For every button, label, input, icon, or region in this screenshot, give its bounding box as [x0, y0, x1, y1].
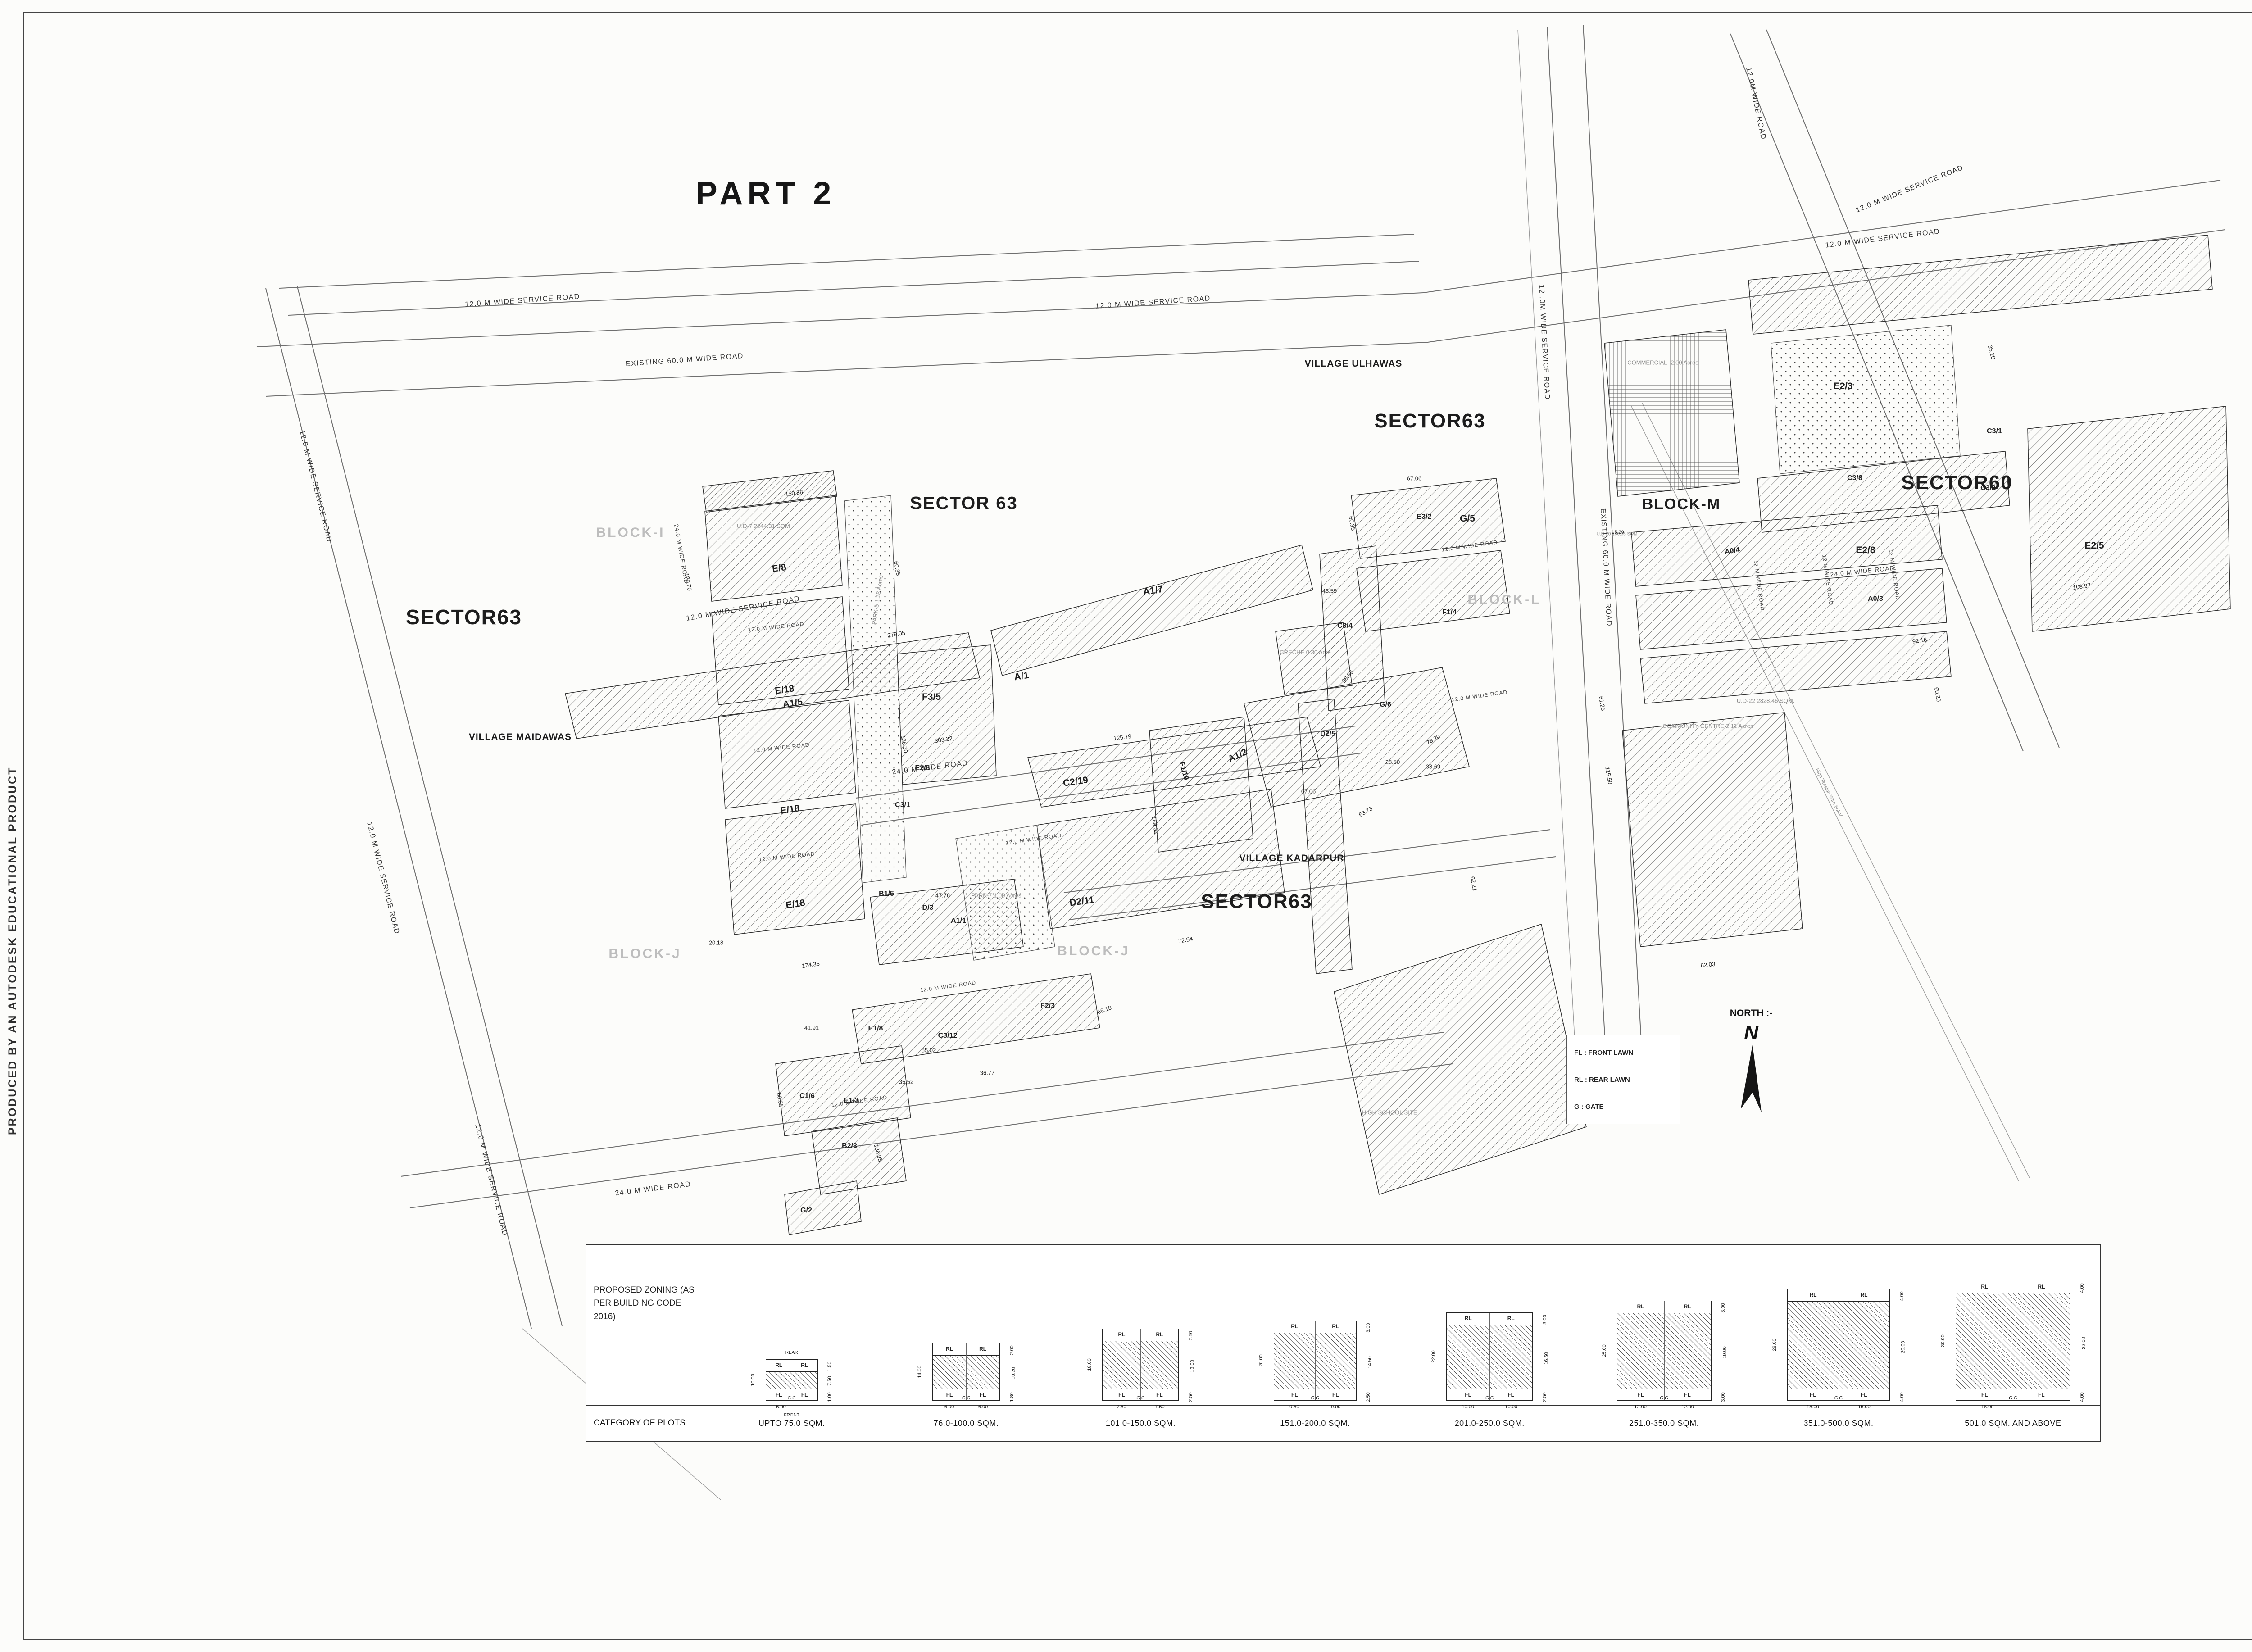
map-label: C1/6 — [799, 1092, 815, 1100]
rl-abbr: RL — [766, 1360, 792, 1371]
map-label: U.D-7 2244.31 SQM — [737, 523, 790, 530]
proposed-zoning-strip: PROPOSED ZONING (AS PER BUILDING CODE 20… — [586, 1244, 2101, 1442]
zoning-diagram-cell: 14.00 2.00 10.20 1.80 RL RL FL — [879, 1245, 1053, 1405]
map-label: C3/2 — [1980, 484, 1996, 492]
plot-front-dim: 2.50 — [1188, 1392, 1194, 1402]
rear-lawn-band: RL RL — [933, 1343, 999, 1356]
map-label: E/18 — [785, 898, 806, 911]
plot-width-dims: 7.50 7.50 — [1102, 1404, 1179, 1410]
rl-abbr: RL — [966, 1343, 999, 1355]
map-label: 60.20 — [1933, 687, 1942, 703]
map-label: 169.32 — [1151, 816, 1160, 834]
front-lawn-band: FL FL G G — [1788, 1389, 1889, 1400]
plot-buildable-dim: 22.00 — [2081, 1337, 2086, 1350]
map-label: 120.70 — [683, 572, 693, 591]
legend-gate: G : GATE — [1574, 1103, 1672, 1111]
plot-buildable-dim: 16.50 — [1544, 1352, 1549, 1365]
width-dim: 12.00 — [1681, 1404, 1694, 1410]
map-legend: FL : FRONT LAWN RL : REAR LAWN G : GATE — [1566, 1035, 1680, 1124]
proposed-zoning-label: PROPOSED ZONING (AS PER BUILDING CODE 20… — [586, 1245, 704, 1405]
rl-abbr: RL — [1315, 1321, 1356, 1333]
plot-rear-dim: 4.00 — [1899, 1291, 1905, 1301]
map-label: EXISTING 60.0 M WIDE ROAD — [1598, 508, 1613, 626]
width-dim: 10.00 — [1462, 1404, 1474, 1410]
category-label: 251.0-350.0 SQM. — [1577, 1405, 1751, 1441]
category-label: 501.0 SQM. AND ABOVE — [1926, 1405, 2100, 1441]
rl-abbr: RL — [1956, 1281, 2013, 1293]
map-label: 15.29 — [1612, 530, 1624, 535]
rl-abbr: RL — [1788, 1289, 1839, 1301]
map-label: 150.88 — [785, 489, 803, 498]
map-label: 88.85 — [1340, 669, 1355, 685]
plot-box: RL RL FL FL G G — [1102, 1329, 1179, 1401]
rl-abbr: RL — [1839, 1289, 1889, 1301]
map-label: A1/5 — [782, 697, 804, 711]
buildable-zone-hatch — [1617, 1313, 1711, 1389]
plot-front-dim: 1.80 — [1009, 1392, 1015, 1402]
map-label: 36.77 — [980, 1070, 995, 1076]
map-label: PARK-7 1.00 Acres — [971, 892, 1021, 899]
plot-front-dim: 1.00 — [827, 1392, 832, 1402]
map-label: SECTOR63 — [1201, 890, 1312, 913]
map-label: A1/1 — [951, 917, 966, 925]
plot-rear-dim: 3.00 — [1542, 1315, 1548, 1324]
map-label: High Tension Wire 66KV — [1814, 767, 1843, 818]
rl-abbr: RL — [1274, 1321, 1315, 1333]
map-label: CRECHE 0.30 Acre — [1280, 649, 1330, 656]
map-label: C3/1 — [895, 801, 910, 809]
width-dim: 5.00 — [776, 1404, 785, 1410]
plot-diagram: 10.00 1.50 7.50 1.00 REAR RL RL — [766, 1359, 818, 1401]
plot-diagram: 14.00 2.00 10.20 1.80 RL RL FL — [932, 1343, 1000, 1401]
zoning-diagram-cell: 10.00 1.50 7.50 1.00 REAR RL RL — [704, 1245, 879, 1405]
map-label: 115.50 — [1604, 767, 1614, 785]
rear-lawn-band: RL RL — [1956, 1281, 2070, 1293]
map-label: 12.0 M WIDE SERVICE ROAD — [1825, 227, 1940, 250]
map-label: BLOCK-J — [1057, 944, 1130, 959]
width-dim: 12.00 — [1634, 1404, 1647, 1410]
plot-box: RL RL FL FL G G — [1446, 1312, 1533, 1401]
rl-abbr: RL — [792, 1360, 817, 1371]
legend-front-lawn: FL : FRONT LAWN — [1574, 1049, 1672, 1057]
map-label: 28.50 — [1385, 759, 1400, 766]
map-label: 12.0 M WIDE ROAD — [753, 741, 810, 753]
map-label: BLOCK-L — [1468, 592, 1541, 608]
category-of-plots-label: CATEGORY OF PLOTS — [586, 1405, 704, 1441]
map-label: 92.18 — [1912, 636, 1927, 644]
map-label: COMMERCIAL- 2.00 Acres — [1627, 359, 1698, 366]
fl-abbr: FL — [1447, 1389, 1489, 1400]
width-dim: 10.00 — [1505, 1404, 1517, 1410]
legend-rear-lawn: RL : REAR LAWN — [1574, 1076, 1672, 1084]
map-label: E/18 — [774, 683, 795, 697]
map-label: 125.79 — [1113, 733, 1131, 742]
gate-abbr: G G — [2009, 1396, 2017, 1401]
map-label: 38.69 — [1426, 763, 1441, 770]
map-label: 174.35 — [801, 960, 820, 969]
fl-abbr: FL — [1617, 1389, 1664, 1400]
plot-box: RL RL FL FL G G — [1617, 1301, 1712, 1401]
plot-front-dim: 3.00 — [1721, 1392, 1726, 1402]
plot-rear-dim: 2.00 — [1009, 1345, 1015, 1355]
map-label: 24.0 M WIDE ROAD — [892, 759, 969, 777]
plot-box: RL RL FL FL G G — [766, 1359, 818, 1401]
plot-depth-dim: 18.00 — [1087, 1358, 1093, 1371]
map-label: BLOCK-J — [608, 946, 681, 962]
plot-depth-dim: 30.00 — [1941, 1334, 1946, 1347]
map-label: EXISTING 60.0 M WIDE ROAD — [625, 352, 744, 368]
map-label: SECTOR 63 — [910, 494, 1018, 514]
fl-abbr: FL — [1315, 1389, 1356, 1400]
plot-buildable-dim: 10.20 — [1011, 1367, 1016, 1380]
plot-buildable-dim: 14.50 — [1367, 1356, 1373, 1369]
map-label: 12.0 M WIDE SERVICE ROAD — [1855, 164, 1965, 215]
map-label: 12 M WIDE ROAD — [1753, 560, 1766, 611]
map-label: 67.06 — [1301, 788, 1316, 795]
map-label: 60.35 — [776, 1092, 785, 1108]
map-label: 12.0 M WIDE ROAD — [758, 850, 815, 862]
map-label: F2/3 — [1040, 1002, 1055, 1010]
map-label: 303.22 — [934, 735, 953, 744]
map-label: E3/2 — [1417, 513, 1432, 521]
fl-abbr: FL — [1664, 1389, 1711, 1400]
map-label: U.D-22 2828.46 SQM. — [1737, 698, 1795, 704]
rl-abbr: RL — [933, 1343, 966, 1355]
plot-buildable-dim: 13.00 — [1190, 1360, 1195, 1372]
map-label: 62.03 — [1700, 961, 1716, 969]
rl-abbr: RL — [1489, 1313, 1532, 1325]
buildable-zone-hatch — [1103, 1341, 1178, 1389]
map-label: D2/11 — [1069, 894, 1095, 908]
gate-abbr: G G — [1136, 1396, 1144, 1401]
map-label: PART 2 — [696, 175, 836, 212]
map-label: C3/4 — [1337, 622, 1353, 630]
rl-abbr: RL — [1447, 1313, 1489, 1325]
plot-diagram: 28.00 4.00 20.00 4.00 RL RL FL — [1787, 1289, 1890, 1401]
plot-rear-dim: 2.50 — [1188, 1331, 1194, 1340]
plot-rear-dim: 3.00 — [1721, 1303, 1726, 1312]
map-label: D2/5 — [1320, 730, 1335, 738]
map-label: SECTOR60 — [1901, 472, 2013, 494]
north-indicator: NORTH :- N — [1724, 1008, 1778, 1116]
gate-abbr: G G — [1485, 1396, 1494, 1401]
front-lawn-band: FL FL G G — [766, 1389, 817, 1400]
gate-abbr: G G — [788, 1396, 796, 1401]
map-label: 12.0 M WIDE ROAD — [1451, 689, 1508, 703]
buildable-zone-hatch — [933, 1356, 999, 1389]
fl-abbr: FL — [1788, 1389, 1839, 1400]
rl-abbr: RL — [1617, 1301, 1664, 1313]
map-label: PARK-5 1.18 Acres — [871, 575, 884, 625]
plot-box: RL RL FL FL G G — [1956, 1281, 2070, 1401]
plot-rear-dim: 1.50 — [827, 1362, 832, 1371]
plot-depth-dim: 25.00 — [1602, 1344, 1607, 1357]
rl-abbr: RL — [1664, 1301, 1711, 1313]
map-label: 35.20 — [1987, 344, 1997, 360]
plot-depth-dim: 20.00 — [1258, 1354, 1264, 1367]
plot-width-dims: 18.00 — [1956, 1404, 2070, 1410]
gate-abbr: G G — [962, 1396, 970, 1401]
map-label: E2/3 — [1833, 381, 1852, 392]
map-label: 12.0 M WIDE ROAD — [920, 979, 976, 993]
plot-buildable-dim: 19.00 — [1722, 1347, 1727, 1359]
map-label: 136.95 — [873, 1144, 884, 1162]
width-dim: 7.50 — [1117, 1404, 1126, 1410]
width-dim: 6.00 — [978, 1404, 988, 1410]
rl-abbr: RL — [1140, 1329, 1178, 1341]
map-label: A/1 — [1013, 670, 1030, 683]
map-label: E/18 — [780, 803, 800, 817]
map-label: 12 M WIDE ROAD — [1821, 554, 1834, 606]
plot-depth-dim: 28.00 — [1772, 1339, 1777, 1351]
map-label: 60.35 — [893, 561, 902, 576]
map-label: 279.05 — [887, 629, 906, 639]
plot-diagram: 22.00 3.00 16.50 2.50 RL RL FL — [1446, 1312, 1533, 1401]
rear-lawn-band: RL RL — [1617, 1301, 1711, 1313]
map-label: 72.54 — [1178, 935, 1194, 944]
map-label: F1/19 — [1177, 761, 1190, 781]
map-label: 43.59 — [1322, 588, 1337, 595]
front-lawn-band: FL FL G G — [1956, 1389, 2070, 1400]
plot-box: RL RL FL FL G G — [932, 1343, 1000, 1401]
map-label: 47.78 — [935, 892, 950, 899]
buildable-zone-hatch — [766, 1372, 817, 1389]
category-label: 76.0-100.0 SQM. — [879, 1405, 1053, 1441]
map-label: 61.25 — [1598, 696, 1607, 712]
map-label: 12.0 M WIDE ROAD — [831, 1094, 888, 1108]
plot-rear-dim: 3.00 — [1366, 1323, 1371, 1332]
map-label: 138.30 — [899, 735, 909, 753]
map-label: VILLAGE ULHAWAS — [1305, 359, 1403, 369]
fl-abbr: FL — [1489, 1389, 1532, 1400]
map-label: VILLAGE MAIDAWAS — [469, 732, 572, 743]
map-label: 66.18 — [1096, 1004, 1112, 1015]
width-dim: 6.00 — [944, 1404, 954, 1410]
edge-text-left: PRODUCED BY AN AUTODESK EDUCATIONAL PROD… — [6, 767, 19, 1135]
drawing-sheet: PART 2 SECTOR63 SECTOR 63 SECTOR63 SECTO… — [0, 0, 2252, 1652]
map-label: 12 M WIDE ROAD — [1888, 549, 1901, 600]
fl-abbr: FL — [933, 1389, 966, 1400]
front-lawn-band: FL FL G G — [1447, 1389, 1532, 1400]
front-lawn-band: FL FL G G — [1274, 1389, 1356, 1400]
north-n: N — [1724, 1025, 1778, 1041]
map-label: 12.0 M WIDE ROAD — [748, 621, 804, 633]
map-label: E2/8 — [1856, 545, 1875, 556]
zoning-diagram-cell: 28.00 4.00 20.00 4.00 RL RL FL — [1751, 1245, 1925, 1405]
map-label: F1/4 — [1442, 608, 1457, 617]
width-dim: 9.50 — [1289, 1404, 1299, 1410]
category-label: 351.0-500.0 SQM. — [1751, 1405, 1925, 1441]
plot-width-dims: 5.00 — [766, 1404, 818, 1410]
gate-abbr: G G — [1660, 1396, 1668, 1401]
plot-depth-dim: 14.00 — [917, 1366, 922, 1378]
plot-diagram: 20.00 3.00 14.50 2.50 RL RL FL — [1274, 1321, 1357, 1401]
map-label: C2/19 — [1062, 775, 1089, 789]
plot-box: RL RL FL FL G G — [1274, 1321, 1357, 1401]
fl-abbr: FL — [2013, 1389, 2070, 1400]
front-lawn-band: FL FL G G — [933, 1389, 999, 1400]
plot-width-dims: 12.00 12.00 — [1617, 1404, 1712, 1410]
plot-front-dim: 2.50 — [1366, 1392, 1371, 1402]
buildable-zone-hatch — [1788, 1302, 1889, 1389]
plot-rear-label: REAR — [785, 1350, 798, 1355]
rear-lawn-band: RL RL — [1103, 1329, 1178, 1341]
plot-front-dim: 4.00 — [2079, 1392, 2085, 1402]
rear-lawn-band: RL RL — [1788, 1289, 1889, 1302]
fl-abbr: FL — [1274, 1389, 1315, 1400]
width-dim: 15.00 — [1858, 1404, 1871, 1410]
map-label: E1/8 — [868, 1025, 883, 1033]
plot-depth-dim: 22.00 — [1431, 1350, 1436, 1363]
map-label: 20.18 — [709, 939, 724, 946]
map-label: SECTOR63 — [406, 605, 522, 629]
map-label: 63.73 — [1358, 805, 1374, 818]
plot-diagram: 25.00 3.00 19.00 3.00 RL RL FL — [1617, 1301, 1712, 1401]
rear-lawn-band: RL RL — [766, 1360, 817, 1372]
map-label: B2/3 — [842, 1142, 857, 1150]
map-label: E2/5 — [2084, 540, 2104, 551]
gate-abbr: G G — [1311, 1396, 1319, 1401]
map-label: A0/3 — [1868, 595, 1883, 603]
map-label: 12.0 M WIDE SERVICE ROAD — [473, 1123, 509, 1237]
rear-lawn-band: RL RL — [1274, 1321, 1356, 1333]
map-label: VILLAGE KADARPUR — [1239, 853, 1344, 864]
map-label: BLOCK-M — [1642, 496, 1721, 513]
category-label: 201.0-250.0 SQM. — [1403, 1405, 1577, 1441]
map-label: SECTOR63 — [1374, 410, 1486, 432]
map-label: 78.20 — [1425, 733, 1441, 746]
map-label: 12 .0M WIDE SERVICE ROAD — [1537, 285, 1551, 400]
map-label: G/5 — [1460, 513, 1475, 524]
map-label: C3/8 — [1847, 474, 1862, 482]
zoning-diagram-cell: 30.00 4.00 22.00 4.00 RL RL FL — [1926, 1245, 2100, 1405]
plot-width-dims: 10.00 10.00 — [1446, 1404, 1533, 1410]
plot-depth-dim: 10.00 — [750, 1374, 756, 1386]
map-label: 62.21 — [1469, 876, 1478, 892]
map-label: 55.02 — [922, 1047, 936, 1054]
map-label: B1/5 — [879, 890, 894, 898]
fl-abbr: FL — [966, 1389, 999, 1400]
plot-width-dims: 6.00 6.00 — [932, 1404, 1000, 1410]
map-label: E/8 — [772, 562, 787, 575]
map-label: BLOCK-I — [596, 525, 665, 540]
width-dim: 9.00 — [1331, 1404, 1340, 1410]
plot-box: RL RL FL FL G G — [1787, 1289, 1890, 1401]
map-label: HIGH SCHOOL SITE — [1362, 1109, 1417, 1116]
zoning-diagram-cell: 25.00 3.00 19.00 3.00 RL RL FL — [1577, 1245, 1751, 1405]
map-label: 12.0 M WIDE ROAD — [1005, 832, 1062, 846]
map-label: F3/5 — [922, 692, 941, 703]
plot-front-label: FRONT — [784, 1413, 799, 1418]
plot-diagram: 18.00 2.50 13.00 2.50 RL RL FL — [1102, 1329, 1179, 1401]
width-dim: 15.00 — [1807, 1404, 1819, 1410]
map-label: 12.0 M WIDE SERVICE ROAD — [297, 430, 333, 544]
map-label: 24.0 M WIDE ROAD — [1830, 564, 1895, 578]
map-label: C3/12 — [938, 1032, 958, 1040]
rl-abbr: RL — [2013, 1281, 2070, 1293]
category-label: 101.0-150.0 SQM. — [1053, 1405, 1228, 1441]
plot-diagram: 30.00 4.00 22.00 4.00 RL RL FL — [1956, 1281, 2070, 1401]
map-label: 12.0 M WIDE SERVICE ROAD — [365, 821, 400, 935]
map-label: 12.0 M WIDE ROAD — [1441, 539, 1498, 553]
map-label: D/3 — [922, 904, 934, 912]
map-label: COMMUNITY CENTRE 2.11 Acres — [1662, 723, 1753, 730]
plot-width-dims: 9.50 9.00 — [1274, 1404, 1357, 1410]
plot-buildable-dim: 20.00 — [1901, 1341, 1906, 1353]
map-label: 41.91 — [804, 1025, 819, 1031]
map-label: 24.0 M WIDE ROAD — [615, 1180, 692, 1198]
front-lawn-band: FL FL G G — [1103, 1389, 1178, 1400]
front-lawn-band: FL FL G G — [1617, 1389, 1711, 1400]
plot-front-dim: 2.50 — [1542, 1392, 1548, 1402]
map-label: A0/4 — [1724, 546, 1740, 557]
category-label: UPTO 75.0 SQM. — [704, 1405, 879, 1441]
map-label: 67.06 — [1407, 475, 1422, 482]
map-label: 35.52 — [899, 1079, 914, 1085]
width-dim: 18.00 — [1981, 1404, 1994, 1410]
plot-buildable-dim: 7.50 — [827, 1376, 832, 1385]
buildable-zone-hatch — [1447, 1325, 1532, 1389]
zoning-diagram-cell: 20.00 3.00 14.50 2.50 RL RL FL — [1228, 1245, 1402, 1405]
rear-lawn-band: RL RL — [1447, 1313, 1532, 1325]
map-label: G/2 — [800, 1207, 812, 1215]
map-label: 12 0M WIDE ROAD — [1744, 67, 1767, 141]
fl-abbr: FL — [1839, 1389, 1889, 1400]
zoning-diagram-cell: 22.00 3.00 16.50 2.50 RL RL FL — [1403, 1245, 1577, 1405]
map-label: C3/1 — [1987, 427, 2002, 436]
map-label: A1/2 — [1226, 747, 1249, 765]
map-label: 12.0 M WIDE SERVICE ROAD — [686, 595, 800, 623]
plot-front-dim: 4.00 — [1899, 1392, 1905, 1402]
north-arrow-icon — [1735, 1041, 1767, 1113]
plot-width-dims: 15.00 15.00 — [1787, 1404, 1890, 1410]
category-label: 151.0-200.0 SQM. — [1228, 1405, 1402, 1441]
width-dim: 7.50 — [1155, 1404, 1164, 1410]
buildable-zone-hatch — [1956, 1293, 2070, 1389]
map-label: 12.0 M WIDE SERVICE ROAD — [465, 293, 581, 309]
map-label: 60.35 — [1348, 516, 1357, 531]
fl-abbr: FL — [1140, 1389, 1178, 1400]
north-label: NORTH :- — [1724, 1008, 1778, 1019]
map-label: G/6 — [1380, 701, 1391, 709]
map-label: A1/7 — [1142, 584, 1164, 598]
fl-abbr: FL — [1956, 1389, 2013, 1400]
map-label: 108.97 — [2072, 582, 2091, 591]
buildable-zone-hatch — [1274, 1333, 1356, 1389]
plot-rear-dim: 4.00 — [2079, 1283, 2085, 1293]
fl-abbr: FL — [1103, 1389, 1140, 1400]
gate-abbr: G G — [1834, 1396, 1843, 1401]
map-label: 12.0 M WIDE SERVICE ROAD — [1095, 295, 1211, 311]
rl-abbr: RL — [1103, 1329, 1140, 1341]
zoning-diagram-cell: 18.00 2.50 13.00 2.50 RL RL FL — [1053, 1245, 1228, 1405]
